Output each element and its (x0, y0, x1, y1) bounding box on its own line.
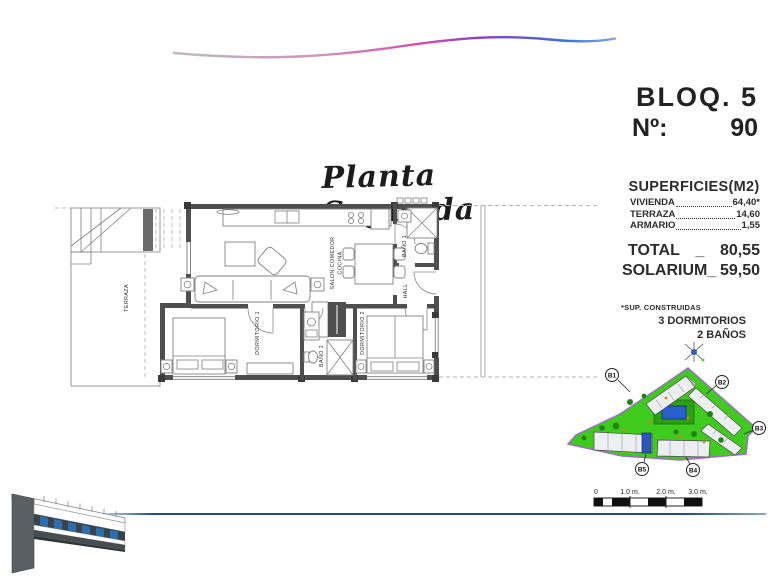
scale-bar: 0 1.0 m. 2.0 m. 3.0 m. (592, 486, 708, 512)
scale-tick-3: 3.0 m. (688, 489, 708, 496)
bedrooms-count: 3 DORMITORIOS (620, 315, 746, 327)
row-label: ARMARIO (630, 220, 675, 232)
row-label: TERRAZA (630, 209, 675, 221)
bed1 (173, 318, 225, 374)
coffee-table (225, 242, 255, 266)
toilet2 (304, 351, 318, 363)
dotted-leader (676, 229, 740, 230)
label-bano2: BAÑO 2 (318, 345, 325, 367)
stair-wall-block (143, 209, 153, 251)
row-value: 1,55 (742, 220, 761, 232)
toilet1 (415, 243, 434, 254)
site-label-b1: B1 (608, 373, 617, 380)
vent-hood-marks (397, 198, 427, 203)
label-salon-line1: SALON-COMEDOR (330, 237, 336, 290)
row-value: 64,40* (733, 197, 760, 209)
building-b4 (657, 440, 710, 457)
site-label-b2: B2 (718, 380, 727, 387)
brochure-page: Planta Segunda (0, 0, 768, 576)
row-value: 14,60 (736, 209, 760, 221)
block-title: BLOQ. 5 (598, 82, 758, 113)
armchair (256, 246, 287, 277)
site-label-b3: B3 (755, 426, 764, 433)
total-separator: _ (695, 242, 704, 260)
solarium-label: SOLARIUM_ (622, 262, 716, 280)
highlighted-block-5-unit (642, 433, 651, 453)
living-room-furniture (181, 242, 324, 302)
superficies-table: VIVIENDA 64,40* TERRAZA 14,60 ARMARIO 1,… (630, 197, 760, 232)
compass-icon (685, 342, 704, 362)
footer-rule (86, 513, 766, 515)
superficies-row: VIVIENDA 64,40* (630, 197, 760, 209)
dotted-leader (676, 218, 735, 219)
unit-number-value: 90 (730, 114, 758, 143)
dotted-leader (676, 206, 732, 207)
floor-plan: TERRAZA SALON-COMEDOR COCINA BAÑO 1 HALL… (55, 190, 600, 405)
superficies-row: TERRAZA 14,60 (630, 209, 760, 221)
fridge (371, 209, 389, 229)
scale-tick-1: 1.0 m. (620, 489, 640, 496)
label-dormitorio2: DORMITORIO 2 (360, 311, 366, 355)
sofa (195, 276, 310, 302)
row-label: VIVIENDA (630, 197, 675, 209)
site-label-b5: B5 (638, 467, 647, 474)
site-plan: B1 B2 B3 B4 B5 (558, 340, 768, 482)
total-row: TOTAL _ 80,55 (628, 242, 760, 260)
total-label: TOTAL (628, 242, 680, 260)
label-salon-line2: COCINA (338, 251, 344, 274)
label-hall: HALL (403, 284, 409, 299)
decorative-gradient-swoosh (168, 26, 620, 66)
unit-number-row: Nº: 90 (632, 114, 758, 143)
superficies-row: ARMARIO 1,55 (630, 220, 760, 232)
site-label-b4: B4 (689, 468, 698, 475)
solarium-row: SOLARIUM_ 59,50 (622, 262, 760, 280)
unit-number-label: Nº: (632, 114, 668, 143)
label-terraza: TERRAZA (124, 284, 130, 312)
dining-table (355, 244, 393, 284)
bedroom2-furniture (356, 316, 434, 373)
total-value: 80,55 (720, 242, 760, 260)
label-bano1: BAÑO 1 (401, 235, 408, 257)
superficies-title: SUPERFICIES(M2) (628, 179, 760, 195)
bath1-sink (398, 210, 411, 222)
scale-tick-0: 0 (594, 489, 598, 496)
scale-tick-2: 2.0 m. (656, 489, 676, 496)
dresser1 (247, 363, 293, 374)
label-dormitorio1: DORMITORIO 1 (255, 311, 261, 355)
developer-building-logo (0, 480, 135, 576)
solarium-value: 59,50 (720, 262, 760, 280)
built-surface-footnote: *SUP. CONSTRUIDAS (621, 303, 701, 312)
